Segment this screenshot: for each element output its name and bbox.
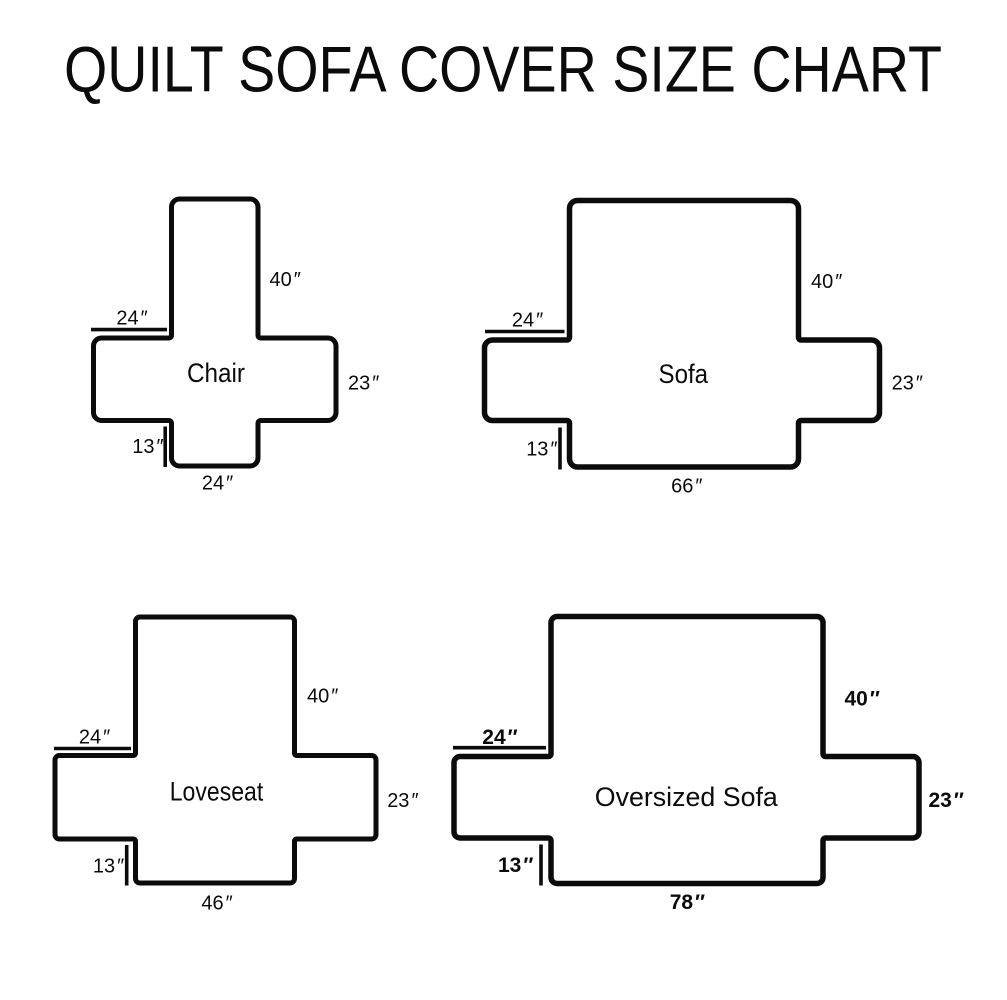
svg-text:23″: 23″: [892, 372, 923, 394]
svg-text:13″: 13″: [93, 856, 124, 878]
svg-text:40″: 40″: [811, 271, 842, 293]
svg-text:23″: 23″: [929, 789, 964, 812]
svg-text:Loveseat: Loveseat: [170, 776, 264, 806]
svg-text:40″: 40″: [307, 685, 338, 707]
svg-text:13″: 13″: [526, 439, 557, 461]
svg-text:Oversized Sofa: Oversized Sofa: [595, 782, 779, 812]
svg-text:24″: 24″: [512, 310, 543, 332]
svg-text:40″: 40″: [845, 688, 880, 711]
svg-text:78″: 78″: [670, 891, 705, 914]
svg-text:23″: 23″: [387, 790, 418, 812]
svg-text:Chair: Chair: [187, 358, 245, 388]
svg-text:40″: 40″: [270, 269, 301, 291]
svg-text:24″: 24″: [79, 727, 110, 749]
svg-text:66″: 66″: [671, 476, 702, 498]
svg-text:46″: 46″: [201, 893, 232, 915]
svg-text:QUILT SOFA COVER SIZE CHART: QUILT SOFA COVER SIZE CHART: [64, 34, 942, 106]
svg-text:13″: 13″: [498, 854, 533, 877]
svg-text:23″: 23″: [348, 373, 379, 395]
svg-text:13″: 13″: [132, 436, 163, 458]
svg-text:24″: 24″: [482, 726, 517, 749]
svg-text:Sofa: Sofa: [659, 359, 709, 389]
svg-text:24″: 24″: [116, 308, 147, 330]
svg-text:24″: 24″: [202, 473, 233, 495]
